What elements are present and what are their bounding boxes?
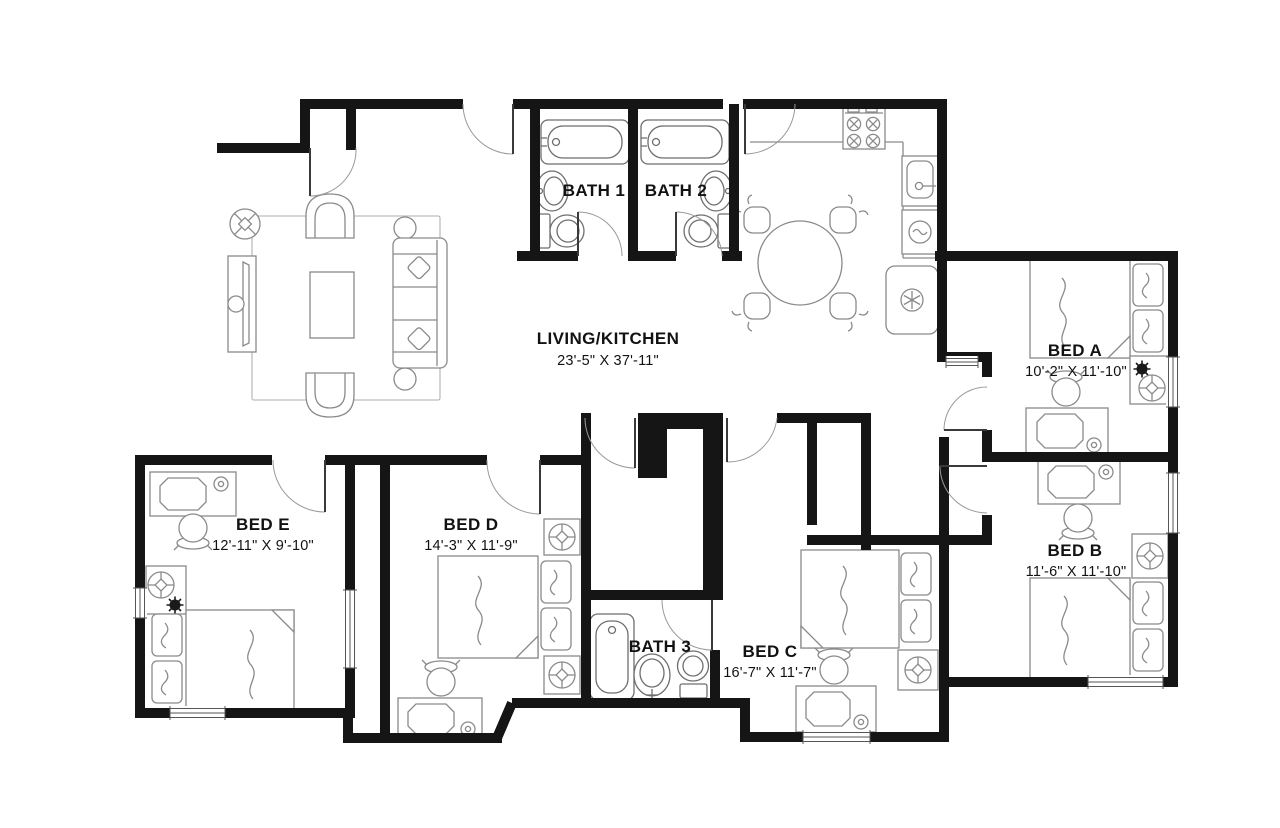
room-dims-bed-d: 14'-3" X 11'-9" [424,538,518,554]
dining-chair-icon [830,293,868,331]
desk-icon [1038,460,1120,504]
desk-chair-icon [174,514,212,550]
ceiling-light-icon [549,524,575,550]
dining-chair-icon [732,293,770,331]
toilet-icon [684,214,731,248]
bed-icon [1030,578,1130,678]
room-dims-bed-b: 11'-6" X 11'-10" [1026,564,1127,580]
dining-chair-icon [830,195,868,233]
bed-icon [801,550,899,648]
ceiling-light-icon [1137,543,1163,569]
room-label-bed-a: BED A [1048,341,1102,360]
pillow-icon [901,553,931,595]
desk-chair-icon [1059,504,1097,540]
window [1166,357,1180,407]
desk-icon [1026,408,1108,454]
room-label-bed-e: BED E [236,515,290,534]
ceiling-light-icon [549,662,575,688]
bed-c-furniture [796,550,938,732]
desk-lamp-icon [214,477,228,491]
bed-e-furniture [146,472,294,712]
bathtub-icon [541,120,629,164]
desk-icon [150,472,236,516]
desk-chair-icon [422,660,460,696]
armchair-icon [306,194,354,238]
toilet-icon [678,651,709,698]
window [1088,675,1163,689]
floor-plan: LIVING/KITCHEN 23'-5" X 37'-11" BATH 1 B… [0,0,1280,828]
pillow-icon [1133,310,1163,352]
pillow-icon [541,561,571,603]
plant-icon [167,597,184,614]
room-dims-bed-c: 16'-7" X 11'-7" [723,665,817,681]
window [803,730,870,744]
window [133,588,147,618]
bath3-fixtures [590,614,709,701]
room-label-bed-b: BED B [1048,541,1103,560]
bed-icon [186,610,294,712]
pillow-icon [152,661,182,703]
kitchen [732,107,938,334]
floor-plan-canvas: LIVING/KITCHEN 23'-5" X 37'-11" BATH 1 B… [0,0,1280,828]
cased-opening [946,356,978,368]
room-label-bath-1: BATH 1 [563,181,626,200]
dishwasher-icon [902,210,938,254]
stove-icon [843,107,885,149]
bathtub-icon [641,120,729,164]
armchair-icon [306,373,354,417]
window [170,706,225,720]
window [1166,473,1180,533]
desk-icon [796,686,876,732]
ceiling-light-icon [148,572,174,598]
living-room-furniture [228,194,447,417]
dining-table-icon [732,195,868,331]
room-dims-bed-a: 10'-2" X 11'-10" [1025,364,1127,380]
room-label-bed-c: BED C [743,642,798,661]
room-label-living-kitchen: LIVING/KITCHEN [537,329,680,348]
pillow-icon [541,608,571,650]
pillow-icon [1133,582,1163,624]
plant-icon [1134,361,1151,378]
pillow-icon [152,614,182,656]
tv-console-icon [228,256,256,352]
closet-slider [343,590,357,668]
ceiling-light-icon [905,657,931,683]
floor-lamp-icon [230,209,260,239]
sofa-icon [393,217,447,390]
desk-lamp-icon [854,715,868,729]
desk-lamp-icon [1087,438,1101,452]
room-dims-bed-e: 12'-11" X 9'-10" [212,538,314,554]
kitchen-sink-icon [902,156,938,206]
pillow-icon [901,600,931,642]
bathtub-icon [590,614,634,700]
room-label-bed-d: BED D [444,515,499,534]
pillow-icon [1133,264,1163,306]
bed-icon [438,556,538,658]
ceiling-light-icon [1139,375,1165,401]
refrigerator-icon [886,266,938,334]
toilet-icon [537,214,584,248]
pedestal-sink-icon [634,654,670,701]
coffee-table-icon [310,272,354,338]
room-label-bath-2: BATH 2 [645,181,708,200]
closet-wall [703,413,723,593]
room-dims-living-kitchen: 23'-5" X 37'-11" [557,353,659,369]
pillow-icon [1133,629,1163,671]
desk-lamp-icon [1099,465,1113,479]
room-label-bath-3: BATH 3 [629,637,692,656]
desk-chair-icon [815,648,853,684]
